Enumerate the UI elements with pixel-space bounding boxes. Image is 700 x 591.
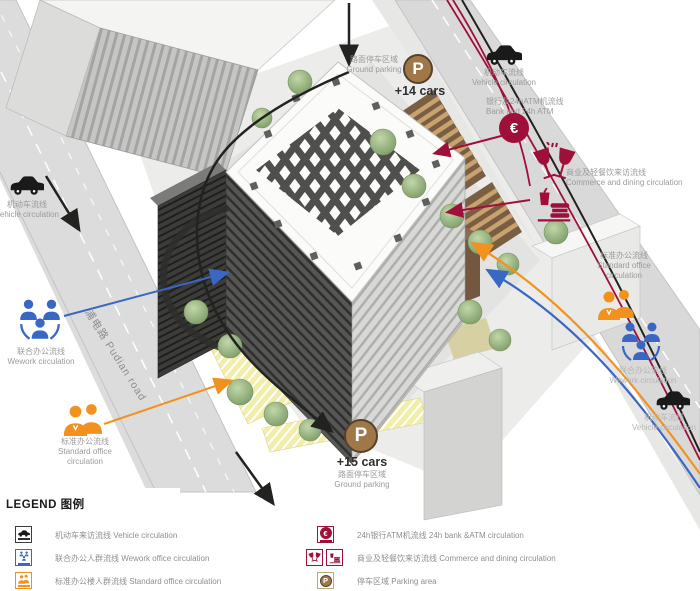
site-circulation-diagram: 机动车流线 Vehicle circulation 路面停车区域 Ground …: [0, 0, 700, 591]
wework-people-icon: [15, 549, 32, 566]
food-drink-icon: [536, 188, 572, 224]
euro-icon: €: [317, 526, 334, 543]
vehicle-circulation-label-top-left: 机动车流线 Vehicle circulation: [0, 200, 60, 220]
bank-atm-label: 银行及24hATM机流线 Bank and 24h ATM: [486, 97, 586, 117]
car-icon: [654, 387, 690, 411]
parking-icon: P: [317, 572, 334, 589]
office-people-icon: [62, 402, 106, 436]
euro-icon: €: [499, 113, 529, 143]
wework-people-icon: [16, 297, 64, 345]
wework-circulation-label-right: 联合办公流线 Wework circulation: [604, 366, 682, 386]
ground-parking-label-top: 路面停车区域 Ground parking: [346, 55, 402, 75]
food-drink-icon: [326, 549, 343, 566]
standard-office-label-right: 标准办公流线 Standard office circulation: [584, 251, 664, 281]
axonometric-scene: [0, 0, 700, 591]
parking-count-bottom: +15 cars: [330, 455, 394, 469]
ground-parking-label-bottom: 路面停车区域 Ground parking: [326, 470, 398, 490]
wine-glasses-icon: [306, 549, 323, 566]
office-people-icon: [596, 288, 638, 320]
wework-circulation-label-left: 联合办公流线 Wework circulation: [0, 347, 82, 367]
parking-count-top: +14 cars: [392, 84, 448, 98]
car-icon: [8, 172, 44, 196]
standard-office-label-left: 标准办公流线 Standard office circulation: [40, 437, 130, 467]
legend-title: LEGEND 图例: [6, 496, 85, 512]
vehicle-circulation-label-bottom-right: 机动车流线 Vehicle circulation: [626, 413, 700, 433]
commerce-dining-label: 商业及轻餐饮来访流线 Commerce and dining circulati…: [566, 168, 700, 188]
parking-badge-top: P: [403, 54, 433, 84]
car-icon: [15, 526, 32, 543]
office-people-icon: [15, 572, 32, 589]
car-icon: [484, 41, 522, 66]
vehicle-circulation-label-top-right: 机动车流线 Vehicle circulation: [465, 68, 543, 88]
parking-badge-bottom: P: [344, 419, 378, 453]
wework-people-icon: [618, 320, 664, 366]
